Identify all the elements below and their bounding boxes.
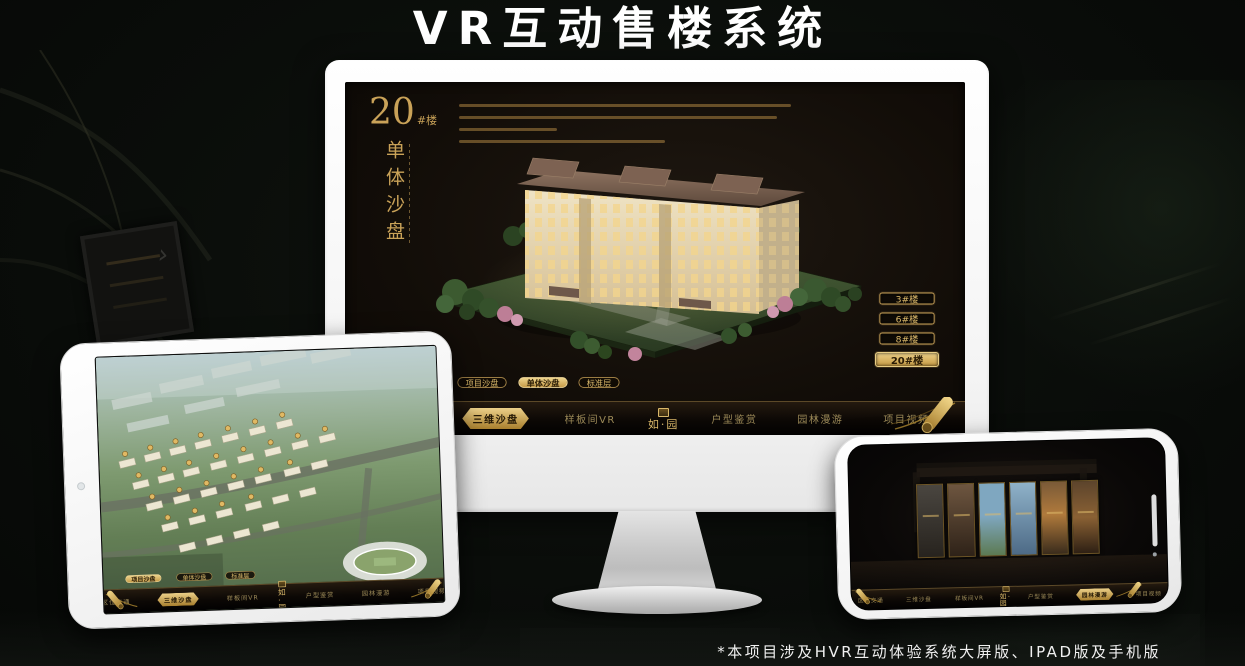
tab-standard-floor[interactable]: 标准层 xyxy=(579,377,620,388)
nav-item-showroom-vr[interactable]: 样板间VR xyxy=(222,590,264,604)
floor-button-6[interactable]: 6#楼 xyxy=(879,313,934,325)
nav-item-garden-roam[interactable]: 园林漫游 xyxy=(1074,588,1116,601)
brand-logo: 如·园 xyxy=(1000,586,1013,607)
monitor-stand-base xyxy=(552,586,762,614)
tab-project-sandbox[interactable]: 项目沙盘 xyxy=(125,574,161,583)
tab-single-sandbox[interactable]: 单体沙盘 xyxy=(176,572,212,581)
headline-divider xyxy=(409,144,410,244)
background-plaque xyxy=(80,221,194,347)
scroll-ornament-icon xyxy=(104,586,141,613)
tab-standard-floor[interactable]: 标准层 xyxy=(225,571,255,580)
page-title: VR互动售楼系统 xyxy=(0,0,1245,58)
panorama-panel[interactable] xyxy=(978,482,1007,557)
nav-item-garden-roam[interactable]: 园林漫游 xyxy=(357,585,396,599)
nav-item-unit-gallery[interactable]: 户型鉴赏 xyxy=(301,587,340,601)
brand-logo: 如·园 xyxy=(278,580,288,611)
tablet-screen: 项目沙盘 单体沙盘 标准层 区位交通 三维沙盘 样板间VR 如·园 户型鉴赏 园… xyxy=(95,345,446,615)
monitor-headline: 20#楼 xyxy=(369,94,437,132)
background-foliage xyxy=(965,80,1245,400)
nav-item-3d-sandbox[interactable]: 三维沙盘 xyxy=(155,592,201,607)
building-model-illustration xyxy=(429,146,869,378)
panorama-panel-row xyxy=(916,480,1100,558)
ruyuan-seal-icon xyxy=(1003,586,1010,592)
panorama-panel[interactable] xyxy=(947,483,976,558)
scroll-ornament-icon xyxy=(407,576,444,603)
ruyuan-seal-icon xyxy=(658,408,669,417)
phone-screen: 区位交通 三维沙盘 样板间VR 如·园 户型鉴赏 园林漫游 项目视频 xyxy=(847,437,1169,611)
scroll-ornament-icon xyxy=(1113,579,1144,602)
intro-text-lines xyxy=(459,104,791,152)
headline-suffix: #楼 xyxy=(417,114,437,127)
floor-button-20[interactable]: 20#楼 xyxy=(875,352,939,367)
ruyuan-seal-icon xyxy=(278,580,286,587)
nav-item-unit-gallery[interactable]: 户型鉴赏 xyxy=(703,408,765,429)
phone-camera-icon xyxy=(1153,552,1157,556)
tab-single-sandbox[interactable]: 单体沙盘 xyxy=(518,377,567,388)
background-road-streak xyxy=(1049,262,1221,320)
floor-button-8[interactable]: 8#楼 xyxy=(879,333,934,345)
panorama-panel[interactable] xyxy=(1040,481,1069,556)
tab-project-sandbox[interactable]: 项目沙盘 xyxy=(457,377,506,388)
nav-item-unit-gallery[interactable]: 户型鉴赏 xyxy=(1023,589,1058,602)
nav-item-3d-sandbox[interactable]: 三维沙盘 xyxy=(901,592,936,605)
promo-canvas: › VR互动售楼系统 20#楼 单体沙盘 xyxy=(0,0,1245,666)
nav-item-showroom-vr[interactable]: 样板间VR xyxy=(557,408,624,429)
floor-button-group: 3#楼 6#楼 8#楼 20#楼 xyxy=(875,292,939,367)
floor-button-3[interactable]: 3#楼 xyxy=(879,293,934,305)
headline-number: 20 xyxy=(369,92,415,133)
scroll-ornament-icon xyxy=(853,585,884,608)
nav-item-garden-roam[interactable]: 园林漫游 xyxy=(789,408,851,429)
sandbox-tab-group: 项目沙盘 单体沙盘 标准层 xyxy=(455,376,621,389)
brand-logo: 如·园 xyxy=(648,408,680,430)
footnote-text: *本项目涉及HVR互动体验系统大屏版、IPAD版及手机版 xyxy=(717,641,1161,662)
panorama-panel[interactable] xyxy=(1071,480,1100,555)
nav-item-3d-sandbox[interactable]: 三维沙盘 xyxy=(459,408,533,429)
monitor-stand-neck xyxy=(597,511,717,593)
headline-vertical-title: 单体沙盘 xyxy=(381,140,408,260)
panorama-panel[interactable] xyxy=(1009,481,1038,556)
background-road-streak xyxy=(1088,297,1232,346)
panorama-panel[interactable] xyxy=(916,484,945,559)
scroll-ornament-icon xyxy=(889,397,959,433)
gate-lintel xyxy=(917,464,1097,477)
background-collage-tile xyxy=(240,620,460,666)
nav-item-showroom-vr[interactable]: 样板间VR xyxy=(950,591,988,604)
tablet-mockup: 项目沙盘 单体沙盘 标准层 区位交通 三维沙盘 样板间VR 如·园 户型鉴赏 园… xyxy=(59,330,461,630)
phone-mockup: 区位交通 三维沙盘 样板间VR 如·园 户型鉴赏 园林漫游 项目视频 xyxy=(834,428,1182,620)
